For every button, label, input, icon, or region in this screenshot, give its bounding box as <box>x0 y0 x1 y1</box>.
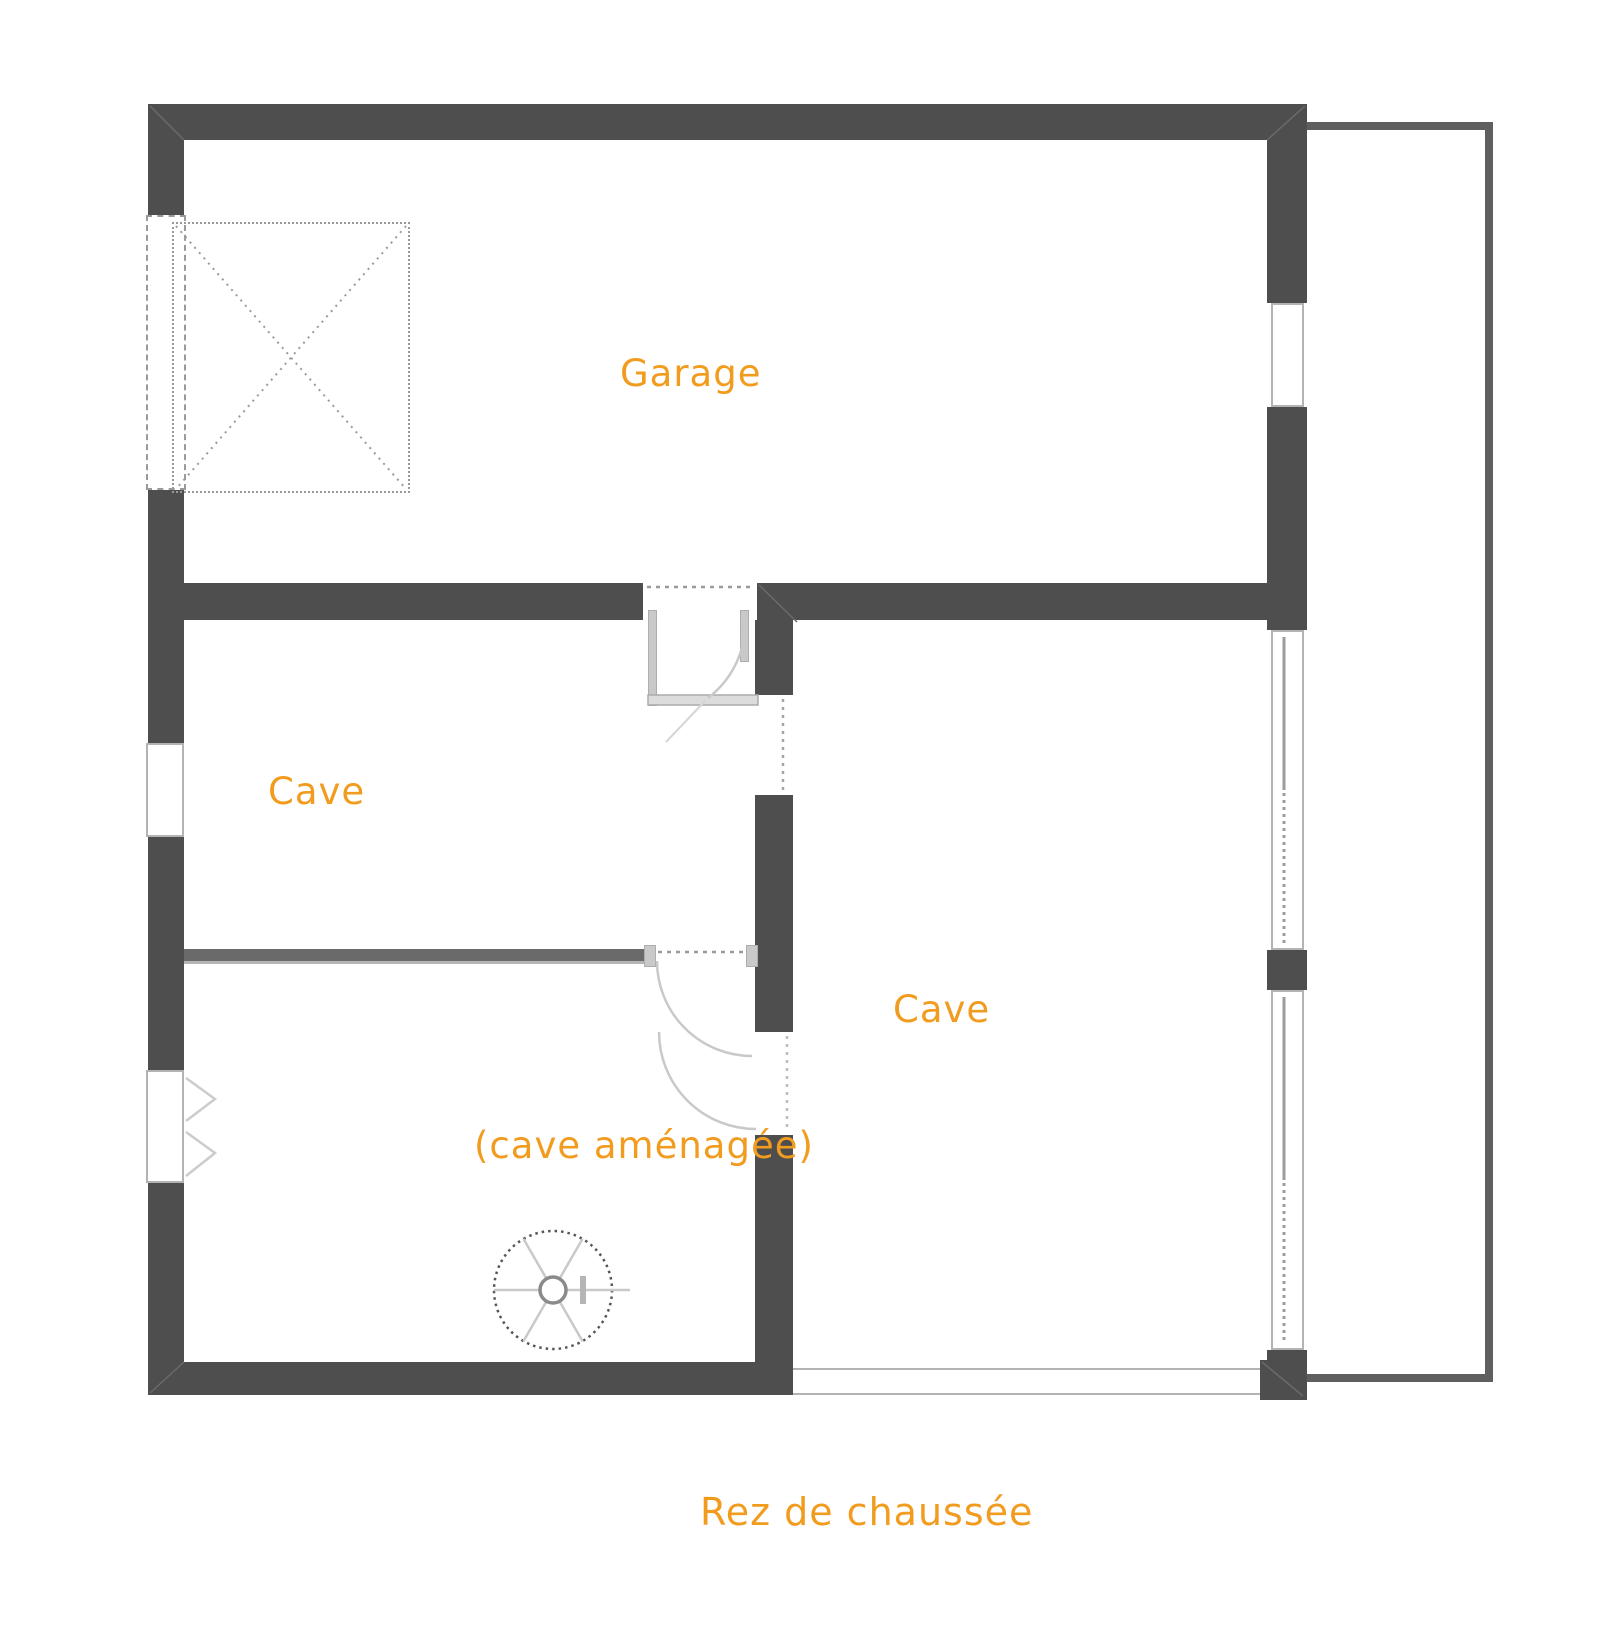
outer-wall-right-segment-3 <box>1267 950 1307 990</box>
garage-door-x-marker <box>172 222 410 493</box>
door-swing-arc <box>659 1032 756 1129</box>
outer-wall-right-segment-1 <box>1267 140 1307 303</box>
garage-partition-wall-left <box>184 583 643 620</box>
central-wall-door-opening-2 <box>755 1032 793 1135</box>
central-wall-segment-3 <box>755 1135 793 1362</box>
outer-wall-left-segment-2 <box>148 490 184 743</box>
garage-partition-wall-right <box>757 583 1267 620</box>
outer-wall-left-segment-1 <box>148 140 184 215</box>
cave-divider-wall <box>184 949 654 964</box>
central-wall-segment-2 <box>755 795 793 1032</box>
cave-divider-door-opening <box>654 949 752 964</box>
outer-wall-right-segment-4 <box>1267 1350 1307 1400</box>
spiral-staircase-icon <box>494 1231 630 1349</box>
outer-wall-left-segment-3 <box>148 837 184 1070</box>
room-label-cave-left: Cave <box>268 770 365 813</box>
door-swing-arc <box>657 961 752 1056</box>
door-leaf <box>648 695 758 705</box>
central-wall-segment-1 <box>755 620 793 695</box>
room-label-garage: Garage <box>620 352 761 395</box>
annex-extension-outline <box>1307 122 1493 1382</box>
divider-door-jamb-right <box>746 945 758 967</box>
door-leaf-line <box>666 700 706 742</box>
central-wall-door-opening-1 <box>755 695 793 795</box>
door-jamb-right <box>740 610 749 662</box>
floor-plan: Garage Cave Cave (cave aménagée) Rez de … <box>0 0 1600 1633</box>
divider-door-jamb-left <box>644 945 656 967</box>
floor-caption: Rez de chaussée <box>700 1490 1033 1534</box>
window-right-wall-2 <box>1271 630 1304 950</box>
door-jamb-left <box>648 610 657 706</box>
window-right-wall-1 <box>1271 303 1304 407</box>
left-door-leaf-chevrons <box>186 1078 215 1176</box>
window-right-wall-3 <box>1271 990 1304 1350</box>
stair-newel <box>540 1277 566 1303</box>
outer-wall-top <box>148 104 1307 140</box>
divider-door <box>657 952 752 1056</box>
outer-wall-left-segment-4 <box>148 1183 184 1362</box>
door-left-wall <box>146 1070 184 1183</box>
room-label-cave-right: Cave <box>893 988 990 1031</box>
window-left-wall <box>146 743 184 837</box>
outer-wall-right-segment-2 <box>1267 407 1307 630</box>
bay-opening-bottom-wall <box>793 1368 1260 1395</box>
room-label-cave-amenagee: (cave aménagée) <box>474 1124 814 1167</box>
outer-wall-bottom-left <box>148 1362 793 1395</box>
